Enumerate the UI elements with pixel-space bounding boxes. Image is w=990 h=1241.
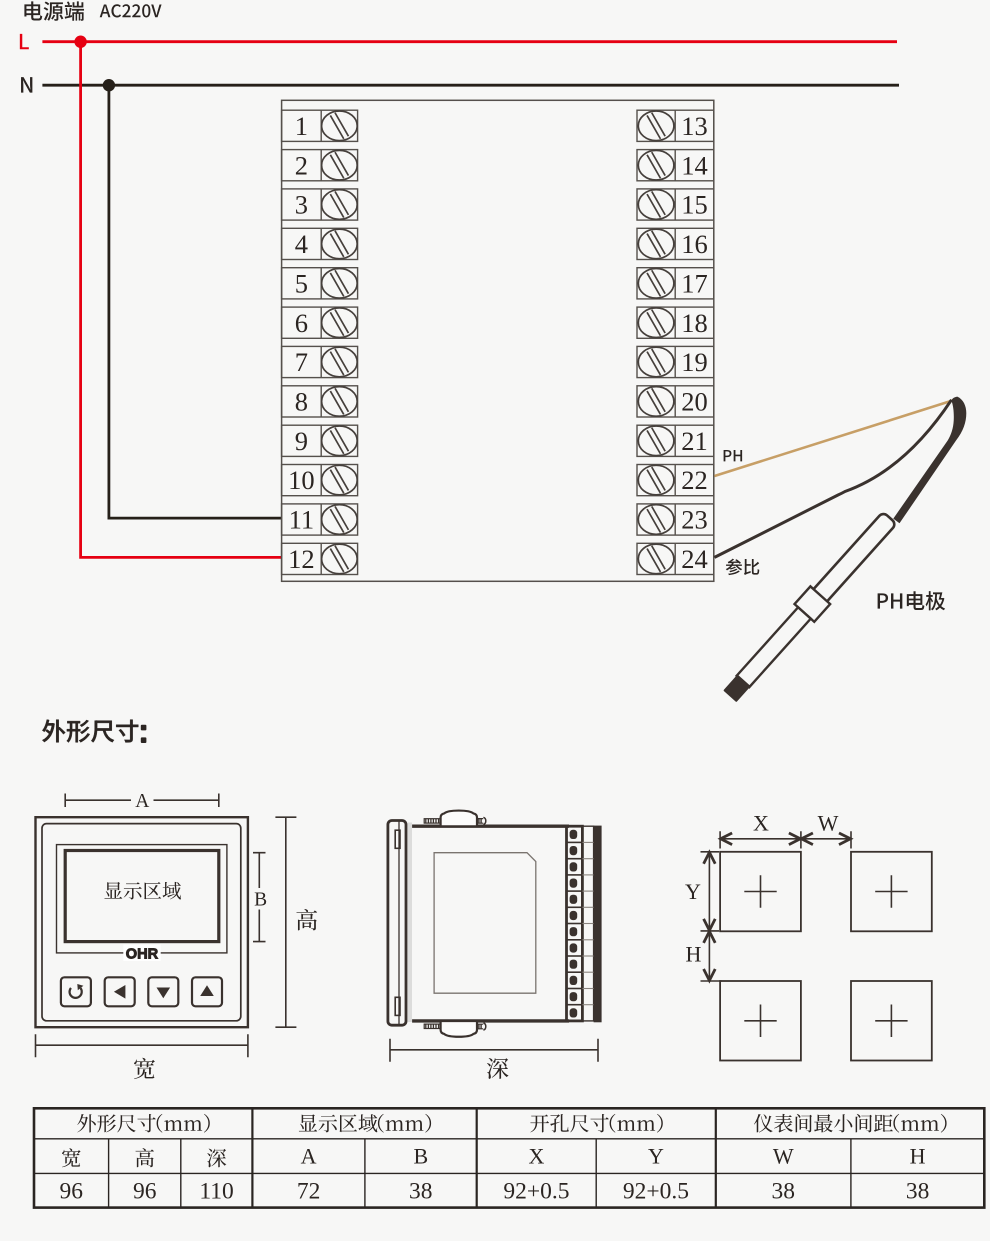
svg-text:22: 22: [681, 465, 708, 495]
svg-text:38: 38: [906, 1178, 930, 1204]
svg-text:10: 10: [288, 465, 315, 495]
svg-text:5: 5: [295, 268, 308, 298]
svg-text:H: H: [910, 1144, 926, 1169]
svg-text:92+0.5: 92+0.5: [623, 1178, 689, 1204]
svg-text:12: 12: [288, 544, 315, 574]
svg-text:A: A: [135, 791, 149, 812]
svg-text:19: 19: [681, 347, 708, 377]
svg-text:16: 16: [681, 229, 708, 259]
svg-text:W: W: [818, 810, 839, 835]
svg-text:9: 9: [295, 426, 308, 456]
svg-text:W: W: [773, 1144, 794, 1169]
svg-text:96: 96: [133, 1178, 157, 1204]
svg-text:38: 38: [409, 1178, 433, 1204]
svg-text:4: 4: [295, 229, 308, 259]
svg-text:20: 20: [681, 387, 708, 417]
svg-text:15: 15: [681, 190, 708, 220]
svg-text:OHR: OHR: [126, 946, 159, 962]
svg-text:3: 3: [295, 190, 308, 220]
svg-text:1: 1: [295, 111, 308, 141]
svg-text:92+0.5: 92+0.5: [503, 1178, 569, 1204]
svg-text:110: 110: [199, 1178, 233, 1204]
svg-text:B: B: [254, 889, 267, 910]
svg-text:Y: Y: [685, 879, 701, 904]
svg-text:2: 2: [295, 150, 308, 180]
svg-text:X: X: [528, 1144, 544, 1169]
svg-text:Y: Y: [648, 1144, 664, 1169]
svg-text:23: 23: [681, 505, 708, 535]
svg-text:96: 96: [60, 1178, 84, 1204]
svg-text:H: H: [686, 942, 702, 967]
svg-text:13: 13: [681, 111, 708, 141]
svg-text:18: 18: [681, 308, 708, 338]
svg-text:8: 8: [295, 387, 308, 417]
svg-text:7: 7: [295, 347, 308, 377]
svg-text:24: 24: [681, 544, 708, 574]
svg-text:38: 38: [772, 1178, 796, 1204]
svg-text:A: A: [301, 1144, 317, 1169]
svg-text:72: 72: [297, 1178, 321, 1204]
svg-text:17: 17: [681, 268, 708, 298]
svg-text:B: B: [413, 1144, 428, 1169]
svg-text:11: 11: [289, 505, 315, 535]
svg-text:X: X: [753, 810, 769, 835]
svg-text:14: 14: [681, 150, 708, 180]
svg-text:21: 21: [681, 426, 708, 456]
svg-text:6: 6: [295, 308, 308, 338]
